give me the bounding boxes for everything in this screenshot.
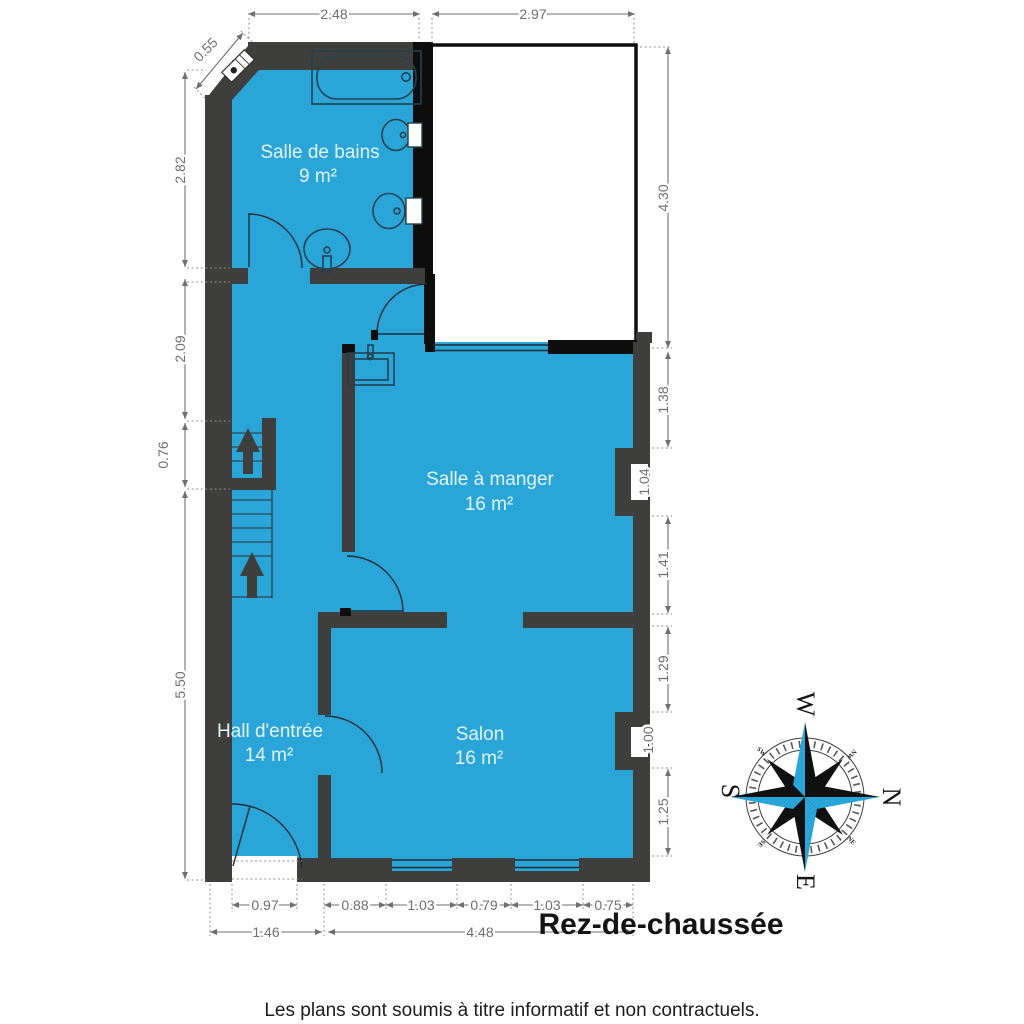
dim-label: 2.82 [172,156,188,183]
dim-label: 1.41 [655,551,671,578]
dim-label: 2.09 [172,335,188,362]
front-door-opening [232,856,297,884]
dim-label: 4.48 [466,924,493,940]
compass-letter-s: S [716,784,745,798]
dim-label: 1.25 [655,798,671,825]
room-name-bathroom: Salle de bains [260,142,379,163]
compass-letter-e: E [791,874,820,890]
room-name-salon: Salon [456,724,505,745]
dim-label: 4.30 [655,184,671,211]
dim-label: 0.55 [190,34,221,65]
room-area-salon: 16 m² [455,748,504,769]
room-name-dining: Salle à manger [426,469,554,490]
disclaimer: Les plans sont soumis à titre informatif… [264,1000,759,1021]
dim-label: 5.50 [172,671,188,698]
dim-label: 0.88 [341,897,368,913]
compass-letter-n: N [877,788,906,807]
left-wall [205,95,232,882]
bottom-wall [297,858,650,882]
floor-plan-svg: 2.48 2.97 0.55 2.82 2.09 0.76 5.50 4.30 … [0,0,1024,1024]
compass-rose: W N E S NW NE SE SW [716,692,906,890]
dim-label: 1.04 [636,468,652,495]
dim-label: 0.79 [470,897,497,913]
floor-plan-page: 2.48 2.97 0.55 2.82 2.09 0.76 5.50 4.30 … [0,0,1024,1024]
compass-letter-nw: NW [844,748,857,761]
window-bottom-2 [515,856,579,871]
dim-label: 0.97 [251,897,278,913]
room-area-dining: 16 m² [465,494,514,515]
compass-letter-w: W [791,692,820,717]
terrace-area [425,0,660,343]
dim-label: 0.76 [155,441,171,468]
dim-label: 1.00 [640,726,656,753]
dim-label: 1.29 [655,655,671,682]
room-area-hall: 14 m² [245,745,294,766]
dim-label: 1.03 [407,897,434,913]
dim-label: 2.97 [519,6,546,22]
dim-label: 1.38 [655,386,671,413]
dim-label: 2.48 [320,6,347,22]
dim-label: 1.46 [252,924,279,940]
compass-letter-se: SE [756,838,767,849]
compass-letter-sw: SW [755,746,767,758]
compass-letter-ne: NE [845,835,856,846]
window-bottom-1 [392,856,452,871]
room-name-hall: Hall d'entrée [217,721,323,742]
right-wall [633,342,650,882]
room-area-bathroom: 9 m² [299,166,337,187]
plan-title: Rez-de-chaussée [538,908,783,941]
